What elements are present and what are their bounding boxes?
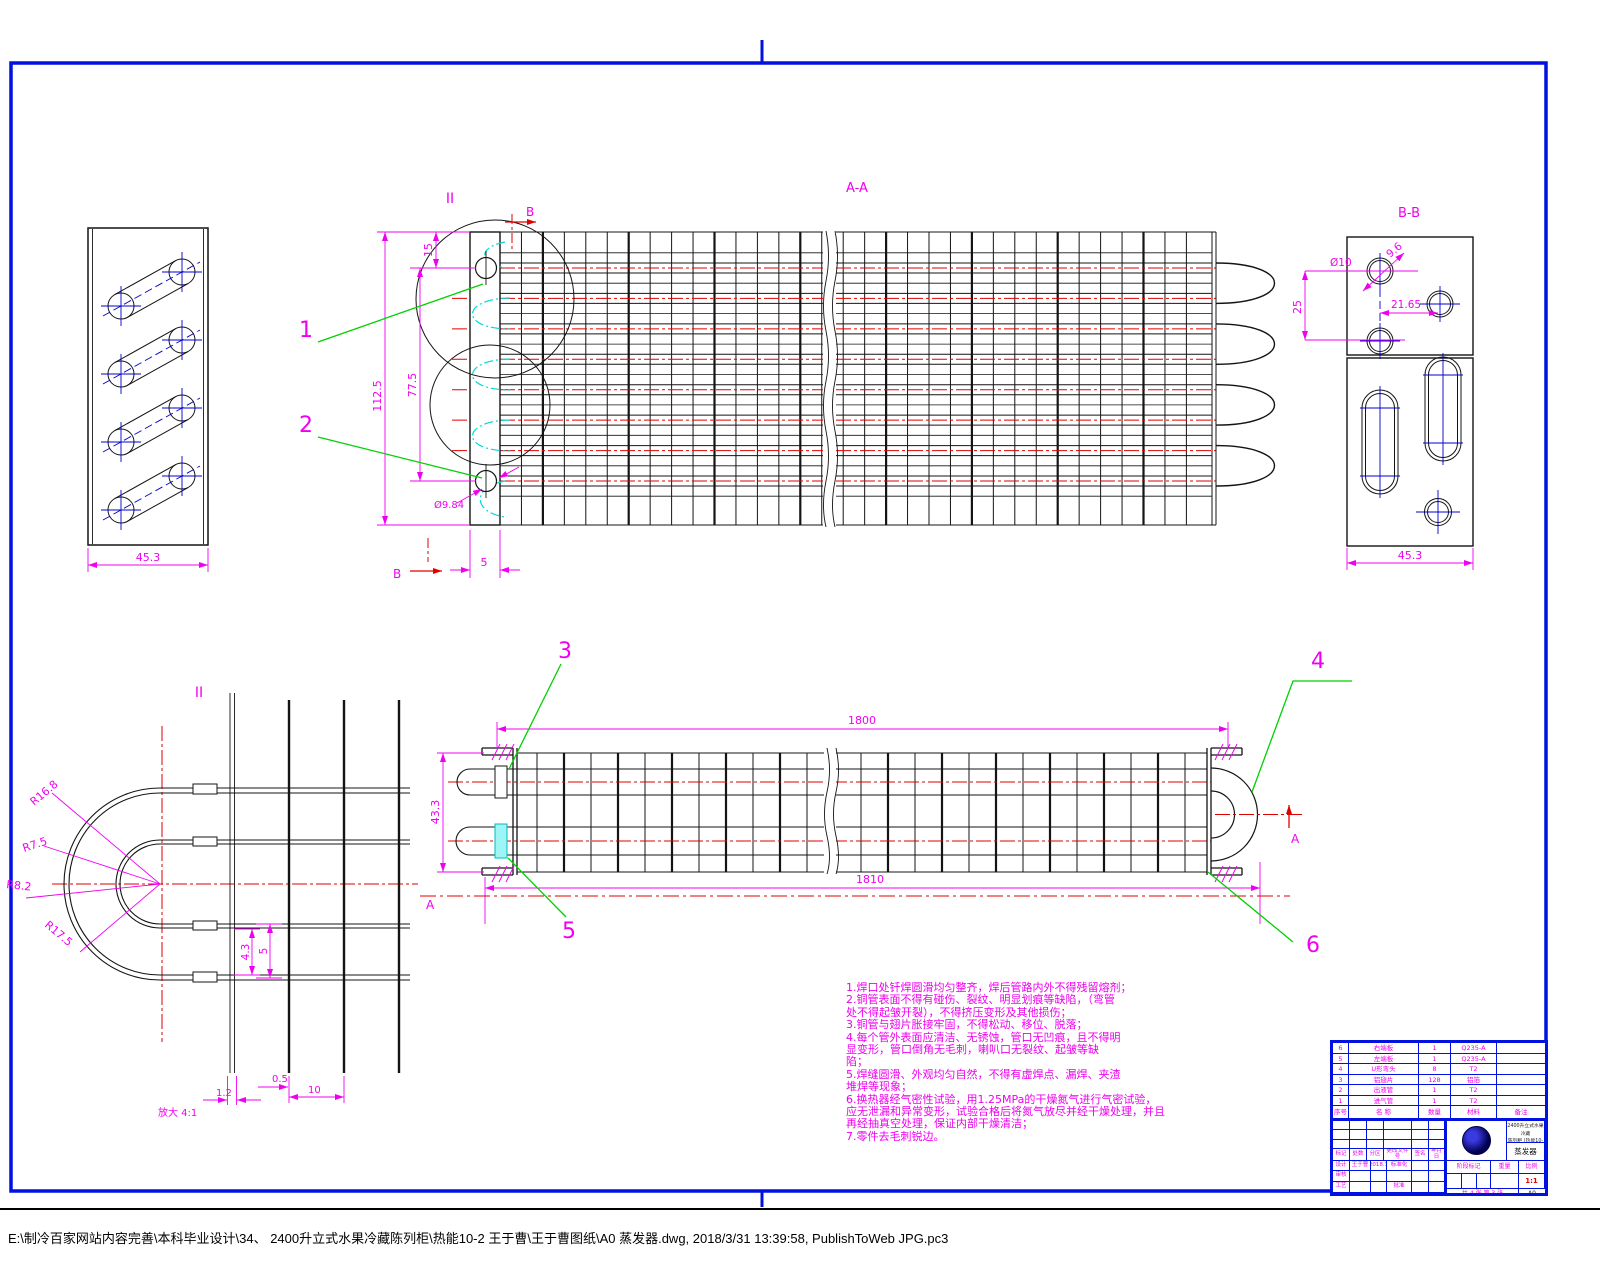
- seal-stamp: [1462, 1126, 1491, 1155]
- sheet-border: [11, 40, 1546, 1207]
- callout-5: 5: [562, 919, 576, 944]
- title-block-right: 2400升立式水果冷藏 陈列柜 (热能10-2) 蒸发器 阶段标记 重量 比例 …: [1447, 1121, 1545, 1193]
- slot-edge: [115, 261, 176, 295]
- dim-side-height: 43.3: [429, 800, 442, 825]
- bom-cell: 铝翅片: [1349, 1075, 1419, 1086]
- slot-centerline: [103, 466, 200, 520]
- slot-edge: [127, 283, 188, 317]
- bom-cell: 8: [1419, 1064, 1451, 1075]
- field-chushu: 处数: [1350, 1149, 1367, 1161]
- section-a-left-label: A: [426, 898, 435, 912]
- field-genggai: 更改文件号: [1384, 1149, 1412, 1161]
- slot-centerline: [103, 398, 200, 452]
- view-section-bb: B-B: [1291, 206, 1473, 570]
- detail-fins: [230, 693, 399, 1073]
- dim-det-e: 1.2: [216, 1088, 232, 1099]
- slot-centerline: [103, 330, 200, 384]
- bom-cell: 出液管: [1349, 1085, 1419, 1096]
- bom-cell: 左端板: [1349, 1054, 1419, 1065]
- bom-table: 6 右端板 1 Q235-A 5 左端板 1 Q235-A 4 U形弯头 8 T…: [1333, 1043, 1545, 1119]
- dim-det-a: 4.3: [240, 944, 252, 961]
- dim-r-inner2: R8.2: [6, 878, 32, 894]
- design-date: 2018.3: [1371, 1161, 1387, 1171]
- dim-det-d: 10: [308, 1085, 321, 1096]
- view-main-coil: A-A II: [299, 181, 1275, 581]
- bom-header-cell: 名 称: [1349, 1106, 1419, 1119]
- section-b-bottom-label: B: [393, 567, 401, 581]
- statusbar-file-path: E:\制冷百家网站内容完善\本科毕业设计\34、 2400升立式水果冷藏陈列柜\…: [8, 1228, 948, 1247]
- slot-centerline: [103, 262, 200, 316]
- note-line: 堆焊等现象；: [846, 1081, 1146, 1093]
- field-fenqu: 分区: [1367, 1149, 1384, 1161]
- bom-cell: 2: [1333, 1085, 1349, 1096]
- org-name-cell: 2400升立式水果冷藏 陈列柜 (热能10-2): [1507, 1121, 1545, 1143]
- bom-header-row: 序号 名 称 数量 材料 备注: [1333, 1106, 1545, 1119]
- highlighted-sleeve: [495, 824, 507, 858]
- title-block-main: 标记 处数 分区 更改文件号 签名 年月日 设计 王于曹 2018.3 标准化 …: [1333, 1119, 1545, 1193]
- bom-header-cell: 数量: [1419, 1106, 1451, 1119]
- note-line: 再经抽真空处理，保证内部干燥清洁；: [846, 1118, 1146, 1130]
- bom-cell: [1497, 1054, 1545, 1065]
- dim-r-outer: R16.8: [28, 778, 61, 809]
- section-label-bb: B-B: [1398, 206, 1420, 221]
- view-left-end-plate: 45.3: [88, 228, 208, 572]
- callout-1: 1: [299, 318, 313, 343]
- section-a-right-label: A: [1291, 832, 1300, 846]
- slot-edge: [127, 487, 188, 521]
- bom-cell: [1497, 1075, 1545, 1086]
- bom-row: 3 铝翅片 128 铝箔: [1333, 1075, 1545, 1086]
- bom-cell: Q235-A: [1451, 1054, 1497, 1065]
- bom-row: 4 U形弯头 8 T2: [1333, 1064, 1545, 1075]
- bom-cell: 1: [1419, 1096, 1451, 1107]
- weld-ticks: [492, 744, 1237, 882]
- size-label: A0: [1519, 1189, 1545, 1193]
- dim-r-inner: R7.5: [21, 835, 49, 855]
- dim-r-outer2: R17.5: [42, 918, 75, 949]
- bom-cell: [1497, 1064, 1545, 1075]
- return-bend: [1216, 263, 1275, 303]
- note-line: 显变形，管口倒角无毛刺，喇叭口无裂纹、起皱等缺: [846, 1044, 1146, 1056]
- bom-cell: 进气管: [1349, 1096, 1419, 1107]
- detail-marker-ii: II: [446, 191, 454, 207]
- bom-row: 1 进气管 1 T2: [1333, 1096, 1545, 1107]
- end-plates: [482, 748, 1242, 875]
- bom-cell: 3: [1333, 1075, 1349, 1086]
- bom-cell: 128: [1419, 1075, 1451, 1086]
- view-detail-ii: II: [6, 685, 418, 1119]
- bom-cell: T2: [1451, 1064, 1497, 1075]
- field-shenhe: 审核: [1333, 1171, 1350, 1181]
- section-label-aa: A-A: [846, 181, 868, 196]
- field-gongyi: 工艺: [1333, 1182, 1350, 1193]
- slot-edge: [127, 351, 188, 385]
- section-b-top-label: B: [526, 205, 534, 219]
- dim-det-b: 5: [258, 948, 270, 955]
- sheet-count: 共 4 张 第 3 张: [1447, 1189, 1519, 1193]
- title-block-revision-grid: 标记 处数 分区 更改文件号 签名 年月日 设计 王于曹 2018.3 标准化 …: [1333, 1121, 1447, 1193]
- bom-row: 5 左端板 1 Q235-A: [1333, 1054, 1545, 1065]
- dim-length-top: 1800: [848, 714, 876, 727]
- scale-value: 1:1: [1519, 1174, 1545, 1189]
- field-pizhun: 批准: [1387, 1182, 1412, 1193]
- return-bend: [1216, 385, 1275, 425]
- bom-cell: 1: [1419, 1043, 1451, 1054]
- callout-3: 3: [558, 639, 572, 664]
- note-line: 陷；: [846, 1056, 1146, 1068]
- detail-view-label-ii: II: [195, 685, 203, 701]
- dim-bb-offset: 21.65: [1391, 299, 1421, 311]
- field-biaozhunhua: 标准化: [1387, 1161, 1412, 1171]
- dim-bb-pitch: 25: [1291, 300, 1304, 314]
- return-bend: [1216, 324, 1275, 364]
- cad-published-sheet: { "sheet": { "statusbar_path": "E:\\制冷百家…: [0, 0, 1600, 1280]
- slot-edge: [115, 329, 176, 363]
- slot-edge: [115, 465, 176, 499]
- tube-bells: [193, 784, 217, 982]
- dim-main-span: 77.5: [406, 373, 419, 398]
- bom-cell: [1497, 1085, 1545, 1096]
- callout-6: 6: [1306, 933, 1320, 958]
- field-biaoji: 标记: [1333, 1149, 1350, 1161]
- dim-bb-width: 45.3: [1398, 549, 1423, 562]
- field-nianyueri: 年月日: [1429, 1149, 1445, 1161]
- dim-length-bottom: 1810: [856, 873, 884, 886]
- bom-cell: [1497, 1043, 1545, 1054]
- bom-cell: 6: [1333, 1043, 1349, 1054]
- part-name-cell: 蒸发器: [1507, 1143, 1545, 1161]
- bom-row: 6 右端板 1 Q235-A: [1333, 1043, 1545, 1054]
- bom-row: 2 出液管 1 T2: [1333, 1085, 1545, 1096]
- bom-header-cell: 备注: [1497, 1106, 1545, 1119]
- bom-header-cell: 序号: [1333, 1106, 1349, 1119]
- bb-crosshairs: [1360, 253, 1463, 534]
- slot-edge: [127, 419, 188, 453]
- dim-main-offset: 15: [422, 243, 435, 257]
- dim-tube-diameter: Ø9.84: [434, 499, 464, 511]
- dim-main-height: 112.5: [371, 380, 384, 412]
- note-line: 7.零件去毛刺锐边。: [846, 1131, 1146, 1143]
- bom-cell: 4: [1333, 1064, 1349, 1075]
- bom-cell: T2: [1451, 1096, 1497, 1107]
- view-side-coil: 1800 1810 43.3 A A 3 4 5 6: [420, 639, 1352, 958]
- org-line1: 2400升立式水果冷藏: [1507, 1123, 1544, 1138]
- bom-cell: Q235-A: [1451, 1043, 1497, 1054]
- field-jieduan: 阶段标记: [1447, 1161, 1491, 1174]
- dim-bb-diag: 9.6: [1384, 240, 1405, 260]
- bom-cell: T2: [1451, 1085, 1497, 1096]
- dim-plate-thickness: 5: [481, 556, 488, 569]
- dim-det-c: 0.5: [272, 1074, 288, 1085]
- bom-cell: 5: [1333, 1054, 1349, 1065]
- return-bend: [1216, 446, 1275, 486]
- bom-cell: 右端板: [1349, 1043, 1419, 1054]
- callout-4: 4: [1311, 649, 1325, 674]
- slot-edge: [115, 397, 176, 431]
- bom-header-cell: 材料: [1451, 1106, 1497, 1119]
- field-sheji: 设计: [1333, 1161, 1350, 1171]
- callout-2: 2: [299, 413, 313, 438]
- dim-left-plate-width: 45.3: [136, 551, 161, 564]
- field-zhongliang: 重量: [1491, 1161, 1519, 1174]
- note-line: 2.铜管表面不得有碰伤、裂纹、明显划痕等缺陷，（弯管: [846, 994, 1146, 1006]
- bom-cell: 1: [1419, 1054, 1451, 1065]
- technical-notes: 1.焊口处钎焊圆滑均匀整齐，焊后管路内外不得残留熔剂； 2.铜管表面不得有碰伤、…: [846, 982, 1146, 1143]
- bom-cell: [1497, 1096, 1545, 1107]
- field-qianming: 签名: [1412, 1149, 1429, 1161]
- bom-cell: 1: [1333, 1096, 1349, 1107]
- bom-cell: U形弯头: [1349, 1064, 1419, 1075]
- bom-cell: 铝箔: [1451, 1075, 1497, 1086]
- bom-cell: 1: [1419, 1085, 1451, 1096]
- dim-bb-hole: Ø10: [1330, 257, 1352, 269]
- stamp-cell: [1447, 1121, 1507, 1161]
- field-bili: 比例: [1519, 1161, 1545, 1174]
- title-block: 6 右端板 1 Q235-A 5 左端板 1 Q235-A 4 U形弯头 8 T…: [1330, 1040, 1548, 1196]
- detail-scale-note: 放大 4:1: [158, 1106, 197, 1119]
- paper-edge-line: [0, 1208, 1600, 1210]
- designer-signature: 王于曹: [1350, 1161, 1371, 1171]
- note-line: 3.铜管与翅片胀接牢固，不得松动、移位、脱落；: [846, 1019, 1146, 1031]
